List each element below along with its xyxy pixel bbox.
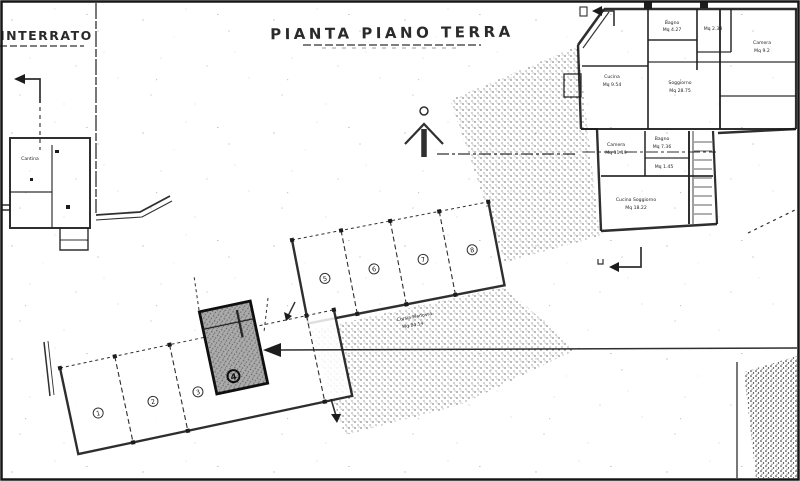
room-label: Bagno: [655, 136, 670, 142]
floor-plan-document: PIANTA PIANO TERRA INTERRATO Cantina: [0, 0, 800, 481]
room-label-cantina: Cantina: [21, 156, 39, 162]
corner-title: INTERRATO: [0, 28, 93, 43]
room-area: Mq 7.36: [653, 144, 672, 150]
chimney-mark: [644, 2, 652, 9]
floor-plan-drawing: PIANTA PIANO TERRA INTERRATO Cantina: [0, 0, 800, 481]
room-area: Mq 2.38: [704, 26, 723, 32]
room-area: Mq 18.22: [625, 205, 647, 211]
room-area: Mq 9.54: [603, 82, 622, 88]
room-area: Mq 11.19: [605, 150, 627, 156]
room-label: Cucina: [604, 74, 620, 80]
room-area: Mq 4.27: [663, 27, 682, 33]
room-label: Camera: [753, 40, 771, 46]
room-area: Mq 28.75: [669, 88, 691, 94]
page-title: PIANTA PIANO TERRA: [270, 23, 514, 44]
room-label: Cucina Soggiorno: [616, 197, 656, 203]
room-label: Bagno: [665, 20, 680, 26]
room-label: Soggiorno: [668, 80, 691, 86]
room-area: Mq 9.2: [754, 48, 770, 54]
room-area: Mq 1.45: [655, 164, 674, 170]
room-label: Camera: [607, 142, 625, 148]
